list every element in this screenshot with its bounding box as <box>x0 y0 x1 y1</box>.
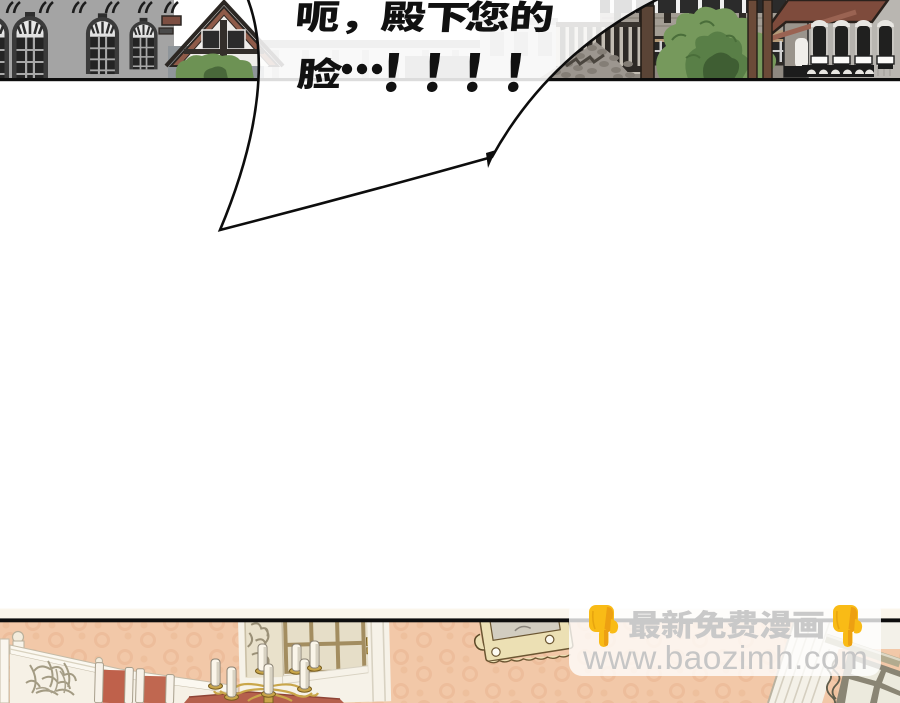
svg-text:www.baozimh.com: www.baozimh.com <box>582 640 868 677</box>
